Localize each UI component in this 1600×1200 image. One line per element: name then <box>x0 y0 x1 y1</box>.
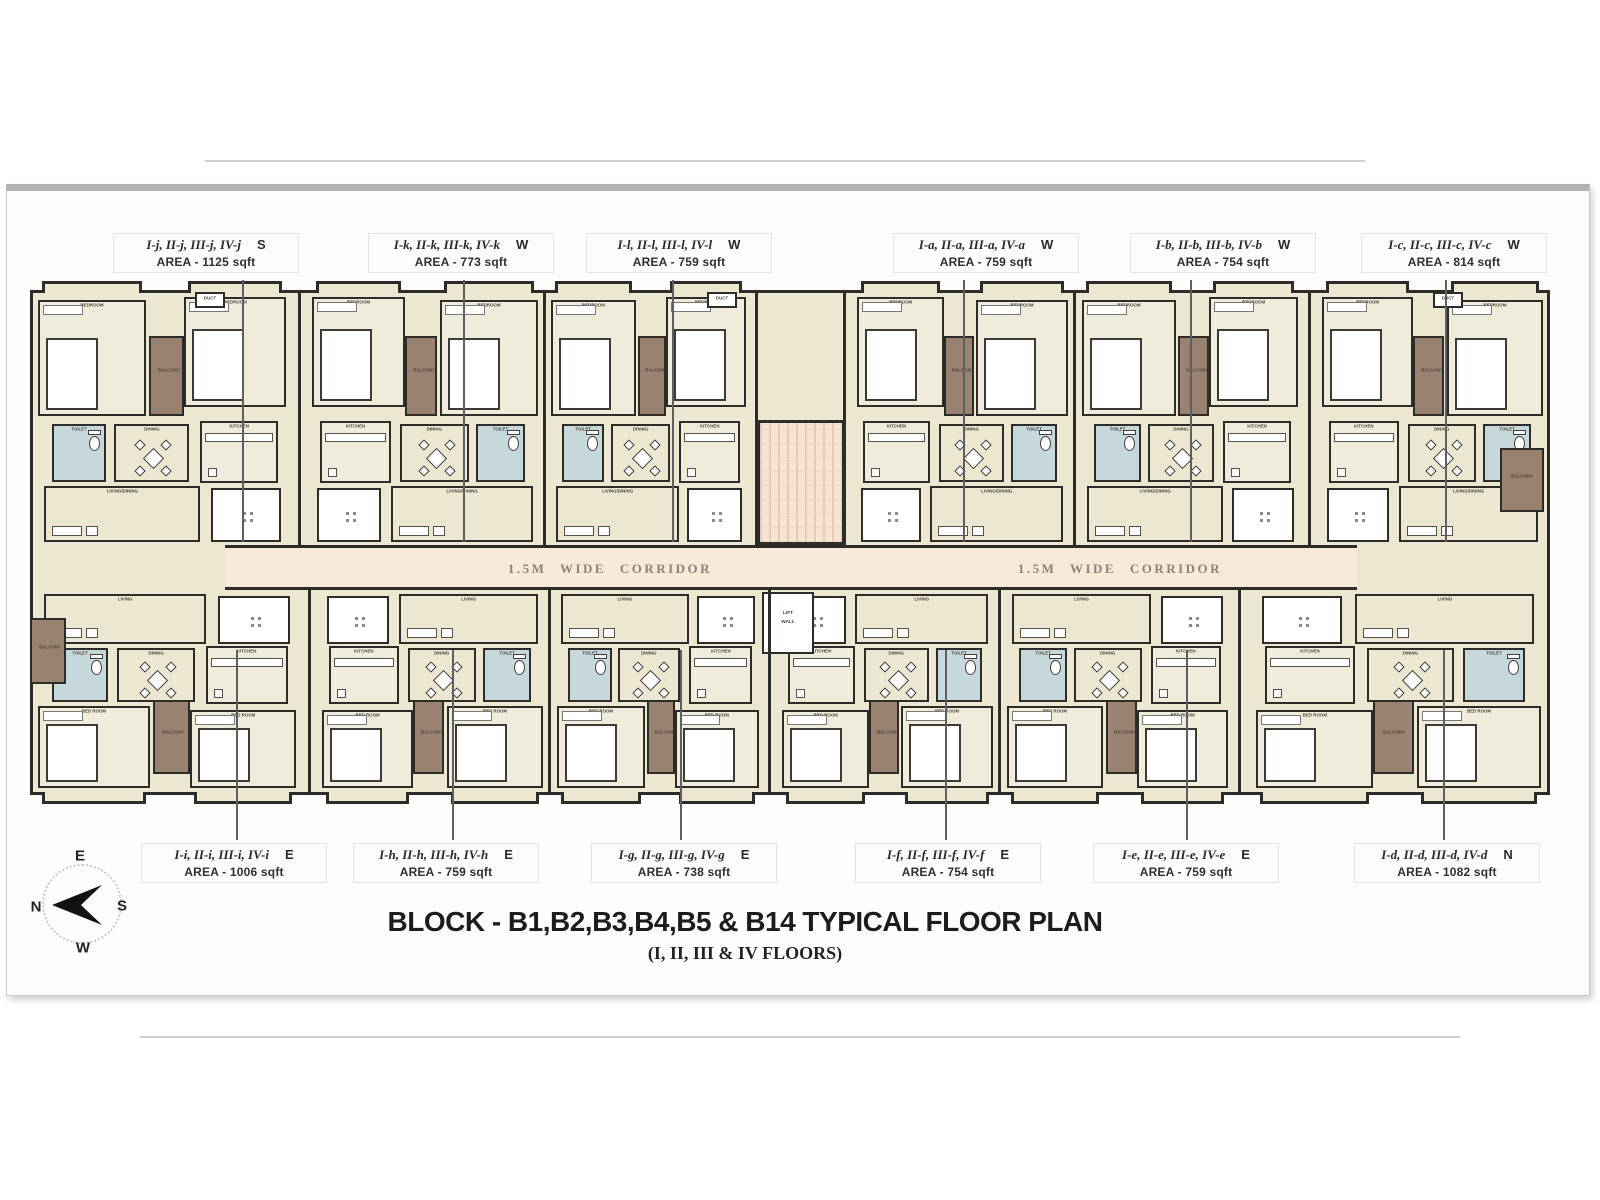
room-bed_room: BED ROOM <box>447 706 543 788</box>
room-living: LIVING <box>1012 594 1151 644</box>
room-bedroom: BEDROOM <box>1082 300 1176 416</box>
unit-area: AREA - 759 sqft <box>1094 865 1278 879</box>
unit-label-line1: I-h, II-h, III-h, IV-hE <box>354 846 538 864</box>
unit-label-line1: I-l, II-l, III-l, IV-lW <box>587 236 771 254</box>
unit-label: I-h, II-h, III-h, IV-hEAREA - 759 sqft <box>353 843 539 883</box>
dining-chair-icon <box>161 465 172 476</box>
unit-label-line1: I-g, II-g, III-g, IV-gE <box>592 846 776 864</box>
room-label: BALCONY <box>1114 730 1129 734</box>
unit-facing: N <box>1503 847 1512 862</box>
leader-line <box>945 650 947 840</box>
plan-title: BLOCK - B1,B2,B3,B4,B5 & B14 TYPICAL FLO… <box>300 906 1190 938</box>
kitchen-sink-icon <box>214 689 223 698</box>
floor-mark-dot <box>355 624 358 627</box>
leader-line <box>463 280 465 542</box>
toilet-tank-icon <box>1123 430 1136 435</box>
room-bed_room: BED ROOM <box>1007 706 1103 788</box>
room-bed_room: BED ROOM <box>1417 706 1541 788</box>
room-label: TOILET <box>1478 651 1510 655</box>
compass-point-south: S <box>117 898 127 915</box>
dining-chair-icon <box>981 439 992 450</box>
unit-facing: W <box>1507 237 1519 252</box>
bed-icon <box>455 724 507 782</box>
room-label: BALCONY <box>654 730 668 734</box>
room-label: DINING <box>880 651 913 655</box>
bed-icon <box>1090 338 1142 410</box>
room-bedroom: BEDROOM <box>1322 297 1413 407</box>
floor-mark-dot <box>353 512 356 515</box>
room-label: DINING <box>417 427 453 431</box>
unit-code: I-i, II-i, III-i, IV-i <box>174 847 269 862</box>
room-dining: DINING <box>864 648 928 702</box>
title-block: BLOCK - B1,B2,B3,B4,B5 & B14 TYPICAL FLO… <box>300 906 1190 964</box>
unit-facing: E <box>285 847 294 862</box>
room-living_dining: LIVING/DINING <box>44 486 201 542</box>
room-label: DINING <box>1164 427 1198 431</box>
dining-chair-icon <box>650 465 661 476</box>
floor-mark-dot <box>1196 617 1199 620</box>
dining-chair-icon <box>658 687 669 698</box>
room-living: LIVING <box>44 594 206 644</box>
dining-chair-icon <box>139 687 150 698</box>
room-open <box>1327 488 1389 542</box>
corridor-label-right: 1.5M WIDE CORRIDOR <box>860 561 1380 577</box>
dining-chair-icon <box>444 465 455 476</box>
floor-mark-dot <box>888 519 891 522</box>
bed-icon <box>1455 338 1507 410</box>
room-living_dining: LIVING/DINING <box>1087 486 1223 542</box>
room-open <box>211 488 281 542</box>
unit-area: AREA - 1006 sqft <box>142 865 326 879</box>
unit-code: I-k, II-k, III-k, IV-k <box>394 237 500 252</box>
bed-pillow-icon <box>327 715 367 725</box>
balcony: BALCONY <box>1500 448 1544 512</box>
floor-mark-dot <box>730 617 733 620</box>
floor-mark-dot <box>362 624 365 627</box>
bed-pillow-icon <box>452 711 492 721</box>
room-open <box>861 488 921 542</box>
room-label: LIVING <box>591 597 659 601</box>
room-label: DINING <box>136 651 177 655</box>
sofa-icon <box>1407 526 1437 536</box>
room-dining: DINING <box>114 424 190 482</box>
floor-mark-dot <box>353 519 356 522</box>
room-label: BALCONY <box>877 730 891 734</box>
room-dining: DINING <box>117 648 195 702</box>
building-edge-tab <box>1326 281 1409 293</box>
leader-line <box>680 650 682 840</box>
bed-icon <box>448 338 500 410</box>
kitchen-counter-icon <box>793 658 850 667</box>
balcony: BALCONY <box>1373 700 1413 774</box>
unit-label: I-g, II-g, III-g, IV-gEAREA - 738 sqft <box>591 843 777 883</box>
unit-code: I-d, II-d, III-d, IV-d <box>1381 847 1487 862</box>
floor-mark-dot <box>820 617 823 620</box>
room-dining: DINING <box>1148 424 1214 482</box>
bed-icon <box>984 338 1036 410</box>
kitchen-sink-icon <box>208 468 217 477</box>
dining-chair-icon <box>165 687 176 698</box>
dining-chair-icon <box>135 465 146 476</box>
floor-mark-dot <box>1355 519 1358 522</box>
building-edge-tab <box>42 792 146 804</box>
kitchen-sink-icon <box>687 468 696 477</box>
room-label: BALCONY <box>1383 730 1403 734</box>
staircase <box>757 420 845 545</box>
room-label: LIVING/DINING <box>1431 489 1505 493</box>
unit-facing: W <box>1278 237 1290 252</box>
toilet-tank-icon <box>88 430 101 435</box>
unit-facing: W <box>516 237 528 252</box>
wall-segment <box>755 290 758 545</box>
floor-mark-dot <box>1306 624 1309 627</box>
floor-mark-dot <box>1267 519 1270 522</box>
bed-pillow-icon <box>981 305 1021 315</box>
dining-chair-icon <box>1394 687 1405 698</box>
building-edge-tab <box>1213 281 1294 293</box>
floor-mark-dot <box>355 617 358 620</box>
building-edge-tab <box>316 281 401 293</box>
room-label: DINING <box>633 651 665 655</box>
compass-point-north: N <box>31 899 42 916</box>
dining-table-icon <box>147 669 168 690</box>
sofa-icon <box>897 628 909 638</box>
sofa-icon <box>564 526 594 536</box>
room-label: KITCHEN <box>226 649 268 653</box>
room-living_dining: LIVING/DINING <box>391 486 533 542</box>
room-toilet: TOILET <box>1094 424 1141 482</box>
sofa-icon <box>1054 628 1066 638</box>
kitchen-counter-icon <box>1334 433 1394 442</box>
room-toilet: TOILET <box>476 424 525 482</box>
unit-code: I-c, II-c, III-c, IV-c <box>1388 237 1491 252</box>
kitchen-counter-icon <box>1228 433 1286 442</box>
floor-mark-dot <box>346 512 349 515</box>
wall-segment <box>1238 590 1241 795</box>
room-living: LIVING <box>855 594 988 644</box>
room-bed_room: BED ROOM <box>1137 710 1228 788</box>
room-open <box>327 596 389 644</box>
building-edge-tab <box>1451 281 1539 293</box>
unit-label: I-f, II-f, III-f, IV-fEAREA - 754 sqft <box>855 843 1041 883</box>
top-divider-line <box>205 160 1365 162</box>
unit-label-line1: I-i, II-i, III-i, IV-iE <box>142 846 326 864</box>
kitchen-counter-icon <box>868 433 925 442</box>
bed-pillow-icon <box>1012 711 1052 721</box>
room-label: KITCHEN <box>879 424 913 428</box>
unit-label-line1: I-k, II-k, III-k, IV-kW <box>369 236 553 254</box>
bed-icon <box>1330 329 1382 401</box>
balcony: BALCONY <box>30 618 66 684</box>
toilet-fixture-icon <box>1050 660 1061 675</box>
sofa-icon <box>1363 628 1393 638</box>
duct-box: DUCT <box>707 292 737 308</box>
balcony: BALCONY <box>944 336 974 416</box>
dining-chair-icon <box>161 439 172 450</box>
dining-table-icon <box>963 447 984 468</box>
unit-code: I-e, II-e, III-e, IV-e <box>1122 847 1225 862</box>
bed-icon <box>320 329 372 401</box>
bed-icon <box>1425 724 1477 782</box>
floor-mark-dot <box>719 519 722 522</box>
dining-chair-icon <box>165 661 176 672</box>
dining-chair-icon <box>981 465 992 476</box>
kitchen-counter-icon <box>334 658 394 667</box>
room-open <box>218 596 291 644</box>
unit-label: I-i, II-i, III-i, IV-iEAREA - 1006 sqft <box>141 843 327 883</box>
toilet-tank-icon <box>507 430 520 435</box>
dining-chair-icon <box>880 687 891 698</box>
unit-label-line1: I-j, II-j, III-j, IV-jS <box>114 236 298 254</box>
unit-label-line1: I-a, II-a, III-a, IV-aW <box>894 236 1078 254</box>
sofa-icon <box>441 628 453 638</box>
floor-mark-dot <box>712 512 715 515</box>
toilet-tank-icon <box>964 654 977 659</box>
unit-facing: E <box>741 847 750 862</box>
room-dining: DINING <box>1367 648 1454 702</box>
kitchen-sink-icon <box>1159 689 1168 698</box>
floor-mark-dot <box>723 624 726 627</box>
room-label: BALCONY <box>1421 368 1436 372</box>
room-label: BALCONY <box>1511 474 1533 478</box>
room-label: KITCHEN <box>219 424 260 428</box>
bed-icon <box>790 728 842 782</box>
floor-mark-dot <box>1362 512 1365 515</box>
room-label: LIVING <box>886 597 957 601</box>
room-dining: DINING <box>939 424 1003 482</box>
dining-chair-icon <box>1117 661 1128 672</box>
room-kitchen: KITCHEN <box>788 646 855 704</box>
unit-code: I-a, II-a, III-a, IV-a <box>919 237 1025 252</box>
unit-facing: W <box>728 237 740 252</box>
unit-label-line1: I-b, II-b, III-b, IV-bW <box>1131 236 1315 254</box>
room-living_dining: LIVING/DINING <box>930 486 1063 542</box>
room-label: KITCHEN <box>693 424 725 428</box>
dining-chair-icon <box>135 439 146 450</box>
unit-area: AREA - 814 sqft <box>1362 255 1546 269</box>
bed-icon <box>1015 724 1067 782</box>
toilet-fixture-icon <box>1508 660 1519 675</box>
floor-mark-dot <box>362 617 365 620</box>
floor-mark-dot <box>1196 624 1199 627</box>
bed-pillow-icon <box>1327 302 1367 312</box>
sofa-icon <box>598 526 610 536</box>
bed-icon <box>46 338 98 410</box>
leader-line <box>242 280 244 542</box>
room-label: DINING <box>132 427 171 431</box>
toilet-tank-icon <box>594 654 607 659</box>
floor-mark-dot <box>723 617 726 620</box>
room-dining: DINING <box>618 648 680 702</box>
unit-area: AREA - 759 sqft <box>354 865 538 879</box>
sofa-icon <box>972 526 984 536</box>
room-kitchen: KITCHEN <box>1223 421 1291 483</box>
kitchen-sink-icon <box>697 689 706 698</box>
sofa-icon <box>1129 526 1141 536</box>
kitchen-counter-icon <box>1270 658 1350 667</box>
room-label: DINING <box>1425 427 1460 431</box>
room-label: LIVING/DINING <box>80 489 164 493</box>
room-bed_room: BED ROOM <box>322 710 413 788</box>
dining-chair-icon <box>139 661 150 672</box>
room-open <box>317 488 381 542</box>
floor-mark-dot <box>820 624 823 627</box>
room-label: BALCONY <box>1186 368 1201 372</box>
room-bedroom: BEDROOM <box>976 300 1068 416</box>
unit-facing: S <box>257 237 266 252</box>
kitchen-sink-icon <box>1231 468 1240 477</box>
unit-label: I-l, II-l, III-l, IV-lWAREA - 759 sqft <box>586 233 772 273</box>
bed-pillow-icon <box>1214 302 1254 312</box>
room-label: KITCHEN <box>1239 424 1274 428</box>
toilet-fixture-icon <box>1124 436 1135 451</box>
bed-pillow-icon <box>1261 715 1301 725</box>
room-label: BALCONY <box>39 645 57 649</box>
room-kitchen: KITCHEN <box>1265 646 1355 704</box>
kitchen-sink-icon <box>1337 468 1346 477</box>
duct-box: DUCT <box>195 292 225 308</box>
unit-area: AREA - 759 sqft <box>894 255 1078 269</box>
unit-area: AREA - 1082 sqft <box>1355 865 1539 879</box>
kitchen-sink-icon <box>871 468 880 477</box>
dining-chair-icon <box>1420 661 1431 672</box>
dining-chair-icon <box>1091 687 1102 698</box>
room-label: DUCT <box>715 296 729 300</box>
room-label: LIVING/DINING <box>424 489 500 493</box>
wall-segment <box>308 590 311 795</box>
toilet-fixture-icon <box>965 660 976 675</box>
floor-plan-page: { "title": { "main": "BLOCK - B1,B2,B3,B… <box>0 0 1600 1200</box>
building-edge-tab <box>326 792 409 804</box>
balcony: BALCONY <box>1106 700 1137 774</box>
duct-box: DUCT <box>1433 292 1463 308</box>
building-edge-tab <box>194 792 292 804</box>
dining-chair-icon <box>1425 465 1436 476</box>
dining-chair-icon <box>624 439 635 450</box>
room-living: LIVING <box>561 594 689 644</box>
floor-mark-dot <box>1260 512 1263 515</box>
compass-point-east: E <box>75 848 85 865</box>
bed-pillow-icon <box>787 715 827 725</box>
unit-code: I-j, II-j, III-j, IV-j <box>146 237 241 252</box>
sofa-icon <box>52 526 82 536</box>
room-bedroom: BEDROOM <box>857 297 944 407</box>
room-kitchen: KITCHEN <box>206 646 287 704</box>
dining-table-icon <box>1099 669 1120 690</box>
sofa-icon <box>399 526 429 536</box>
bottom-divider-line <box>140 1036 1460 1038</box>
sofa-icon <box>86 628 98 638</box>
dining-table-icon <box>143 447 164 468</box>
floor-mark-dot <box>250 512 253 515</box>
kitchen-counter-icon <box>694 658 748 667</box>
room-open <box>1161 596 1223 644</box>
toilet-fixture-icon <box>587 436 598 451</box>
room-kitchen: KITCHEN <box>200 421 278 483</box>
room-label: BALCONY <box>162 730 180 734</box>
leader-line <box>963 280 965 542</box>
room-label: DINING <box>955 427 988 431</box>
toilet-fixture-icon <box>1040 436 1051 451</box>
floor-mark-dot <box>258 617 261 620</box>
building-edge-tab <box>561 792 641 804</box>
toilet-tank-icon <box>1513 430 1526 435</box>
room-bed_room: BED ROOM <box>557 706 645 788</box>
building-edge-tab <box>1260 792 1370 804</box>
room-label: DINING <box>1091 651 1126 655</box>
bed-icon <box>46 724 98 782</box>
toilet-fixture-icon <box>508 436 519 451</box>
building-edge-tab <box>444 281 534 293</box>
room-label: BALCONY <box>646 368 659 372</box>
building-edge-tab <box>1421 792 1537 804</box>
room-bedroom: BEDROOM <box>38 300 146 416</box>
bed-icon <box>1264 728 1316 782</box>
floor-mark-dot <box>719 512 722 515</box>
unit-label: I-a, II-a, III-a, IV-aWAREA - 759 sqft <box>893 233 1079 273</box>
dining-chair-icon <box>1451 465 1462 476</box>
sofa-icon <box>407 628 437 638</box>
floor-mark-dot <box>346 519 349 522</box>
unit-facing: W <box>1041 237 1053 252</box>
bed-icon <box>674 329 726 401</box>
room-label: KITCHEN <box>704 649 737 653</box>
plan-subtitle: (I, II, III & IV FLOORS) <box>300 943 1190 964</box>
room-open <box>697 596 754 644</box>
unit-label: I-c, II-c, III-c, IV-cWAREA - 814 sqft <box>1361 233 1547 273</box>
dining-chair-icon <box>632 687 643 698</box>
floor-mark-dot <box>730 624 733 627</box>
floor-mark-dot <box>250 519 253 522</box>
balcony: BALCONY <box>153 700 189 774</box>
bed-pillow-icon <box>906 711 946 721</box>
unit-label: I-e, II-e, III-e, IV-eEAREA - 759 sqft <box>1093 843 1279 883</box>
room-toilet: TOILET <box>1463 648 1525 702</box>
floor-mark-dot <box>712 519 715 522</box>
bed-pillow-icon <box>562 711 602 721</box>
building-edge-tab <box>905 792 989 804</box>
wall-segment <box>298 290 301 545</box>
room-label: LIVING <box>431 597 505 601</box>
kitchen-sink-icon <box>328 468 337 477</box>
room-toilet: TOILET <box>568 648 612 702</box>
kitchen-sink-icon <box>337 689 346 698</box>
room-label: LIVING <box>1044 597 1118 601</box>
corridor-label-left: 1.5M WIDE CORRIDOR <box>350 561 870 577</box>
dining-chair-icon <box>880 661 891 672</box>
room-label: BALCONY <box>158 368 175 372</box>
room-bedroom: BEDROOM <box>1447 300 1543 416</box>
building-edge-tab <box>786 792 865 804</box>
dining-chair-icon <box>1425 439 1436 450</box>
room-label: KITCHEN <box>337 424 374 428</box>
balcony: BALCONY <box>413 700 444 774</box>
room-bed_room: BED ROOM <box>782 710 869 788</box>
building-edge-tab <box>555 281 632 293</box>
bed-pillow-icon <box>1422 711 1462 721</box>
room-toilet: TOILET <box>1019 648 1067 702</box>
building-edge-tab <box>679 792 755 804</box>
sofa-icon <box>569 628 599 638</box>
balcony: BALCONY <box>1178 336 1209 416</box>
bed-icon <box>909 724 961 782</box>
wall-segment <box>998 590 1001 795</box>
balcony: BALCONY <box>149 336 184 416</box>
unit-area: AREA - 759 sqft <box>587 255 771 269</box>
unit-code: I-l, II-l, III-l, IV-l <box>618 237 713 252</box>
room-dining: DINING <box>611 424 670 482</box>
room-kitchen: KITCHEN <box>320 421 391 483</box>
